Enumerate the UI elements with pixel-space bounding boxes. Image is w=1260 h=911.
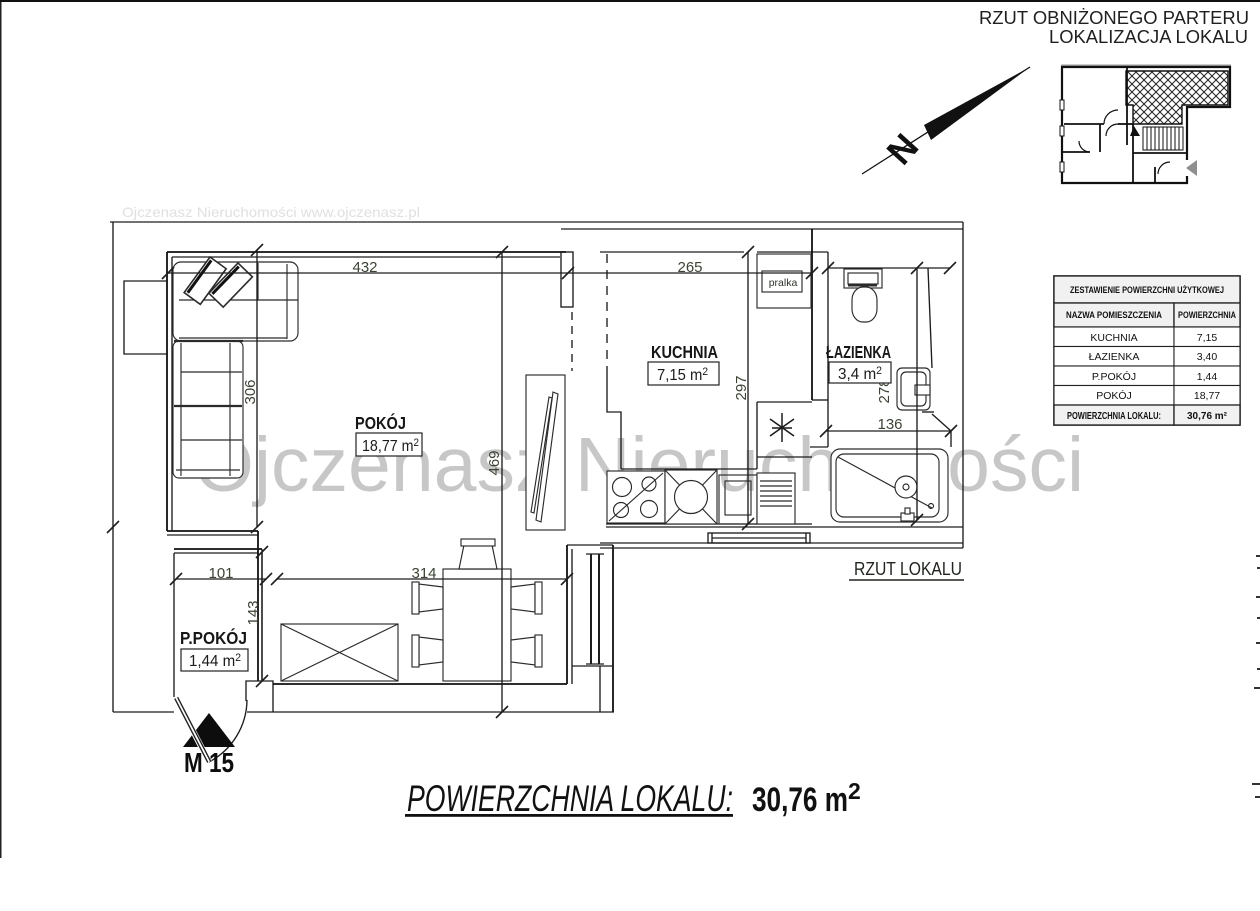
svg-text:306: 306 bbox=[242, 379, 259, 404]
svg-text:POKÓJ: POKÓJ bbox=[355, 412, 406, 433]
svg-text:KUCHNIA: KUCHNIA bbox=[651, 342, 718, 362]
svg-text:101: 101 bbox=[208, 565, 233, 582]
svg-text:7,15: 7,15 bbox=[1197, 332, 1218, 344]
svg-text:18,77: 18,77 bbox=[1194, 390, 1220, 402]
svg-text:POWIERZCHNIA LOKALU:: POWIERZCHNIA LOKALU: bbox=[1067, 411, 1161, 422]
svg-text:LOKALIZACJA LOKALU: LOKALIZACJA LOKALU bbox=[1049, 27, 1248, 47]
svg-text:432: 432 bbox=[352, 259, 377, 276]
svg-text:RZUT LOKALU: RZUT LOKALU bbox=[854, 558, 962, 579]
svg-text:30,76 m²: 30,76 m² bbox=[1187, 410, 1227, 422]
svg-text:1,44 m2: 1,44 m2 bbox=[189, 652, 241, 670]
svg-text:265: 265 bbox=[677, 259, 702, 276]
svg-text:POWIERZCHNIA: POWIERZCHNIA bbox=[1178, 310, 1236, 321]
svg-text:P.POKÓJ: P.POKÓJ bbox=[180, 627, 247, 648]
svg-text:RZUT OBNIŻONEGO PARTERU: RZUT OBNIŻONEGO PARTERU bbox=[979, 8, 1249, 28]
svg-text:KUCHNIA: KUCHNIA bbox=[1090, 332, 1137, 344]
svg-text:143: 143 bbox=[245, 600, 262, 625]
svg-text:1,44: 1,44 bbox=[1197, 371, 1218, 383]
svg-text:297: 297 bbox=[733, 375, 750, 400]
svg-text:POKÓJ: POKÓJ bbox=[1096, 389, 1132, 402]
svg-text:pralka: pralka bbox=[769, 277, 798, 289]
svg-text:M 15: M 15 bbox=[184, 747, 234, 778]
svg-text:30,76 m2: 30,76 m2 bbox=[752, 778, 861, 819]
svg-text:POWIERZCHNIA LOKALU:: POWIERZCHNIA LOKALU: bbox=[407, 778, 733, 819]
svg-text:18,77 m2: 18,77 m2 bbox=[362, 437, 419, 455]
svg-text:3,40: 3,40 bbox=[1197, 351, 1218, 363]
svg-text:7,15 m2: 7,15 m2 bbox=[657, 366, 708, 384]
svg-text:Ojczenasz Nieruchomości www.oj: Ojczenasz Nieruchomości www.ojczenasz.pl bbox=[122, 204, 420, 220]
svg-text:ŁAZIENKA: ŁAZIENKA bbox=[1089, 351, 1140, 363]
svg-text:P.POKÓJ: P.POKÓJ bbox=[1092, 370, 1136, 383]
svg-text:NAZWA POMIESZCZENIA: NAZWA POMIESZCZENIA bbox=[1066, 310, 1162, 321]
svg-text:314: 314 bbox=[411, 565, 436, 582]
svg-text:469: 469 bbox=[486, 450, 503, 475]
svg-text:ŁAZIENKA: ŁAZIENKA bbox=[826, 342, 891, 362]
svg-text:ZESTAWIENIE POWIERZCHNI UŻYTKO: ZESTAWIENIE POWIERZCHNI UŻYTKOWEJ bbox=[1070, 285, 1224, 295]
svg-text:3,4 m2: 3,4 m2 bbox=[838, 365, 882, 383]
svg-text:136: 136 bbox=[877, 416, 902, 433]
